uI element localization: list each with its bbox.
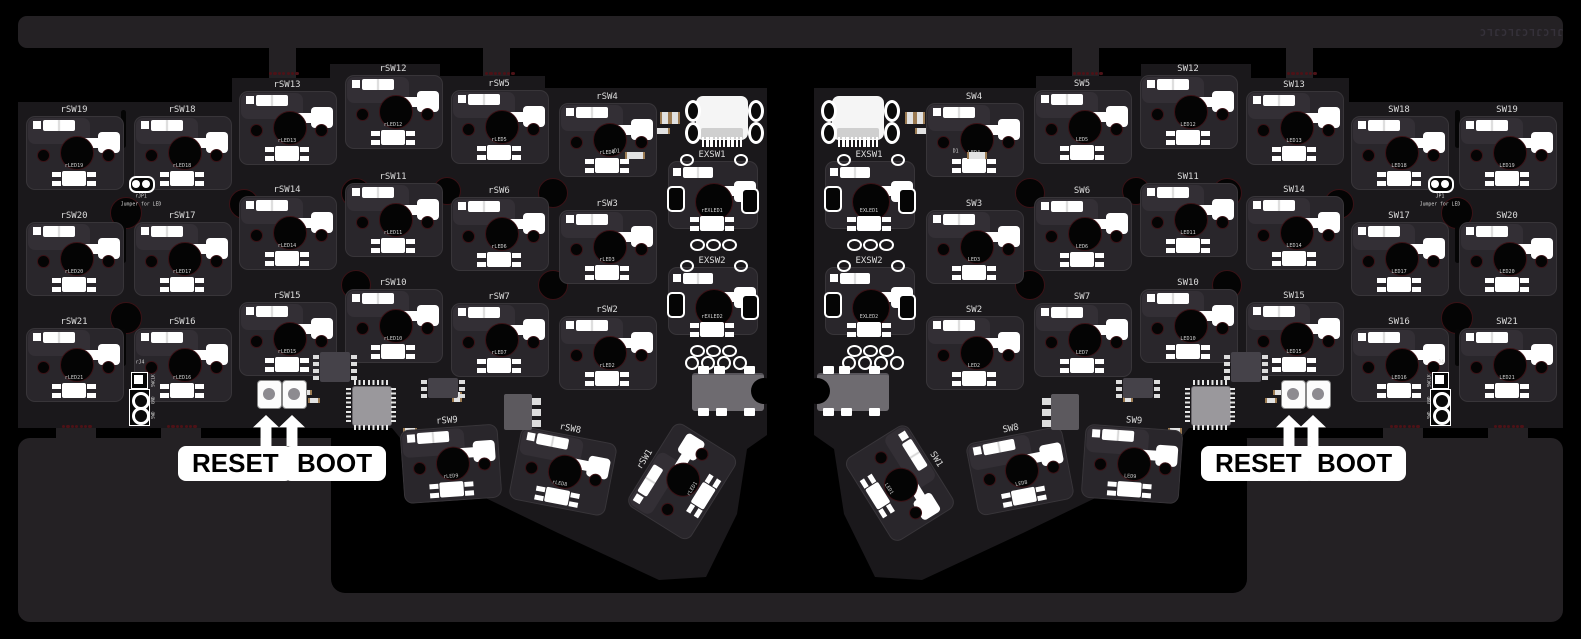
led-pad bbox=[477, 262, 486, 267]
led-pad bbox=[477, 155, 486, 160]
switch-pad bbox=[43, 332, 75, 343]
usb-pin bbox=[872, 137, 874, 147]
mouse-bite-dot bbox=[1099, 72, 1102, 75]
switch-pad bbox=[1147, 188, 1155, 196]
reset-button-cap bbox=[1287, 388, 1299, 400]
led-pad bbox=[952, 266, 961, 271]
led-pad bbox=[1272, 252, 1281, 257]
switch-pad bbox=[933, 215, 941, 223]
led-footprint bbox=[487, 252, 511, 267]
mcu-pins bbox=[354, 380, 388, 385]
led-pad bbox=[1377, 287, 1386, 292]
led-footprint bbox=[1387, 383, 1411, 398]
switch-side-hole bbox=[1427, 149, 1440, 162]
led-footprint bbox=[700, 216, 724, 231]
led-pad bbox=[371, 239, 380, 244]
switch-pad bbox=[830, 168, 838, 176]
switch-side-hole bbox=[102, 255, 115, 268]
ic-pad bbox=[1154, 380, 1160, 384]
microcontroller-chip bbox=[1191, 386, 1231, 426]
switch-pad bbox=[1051, 94, 1083, 105]
led-pad bbox=[1272, 147, 1281, 152]
switch-side-hole bbox=[1151, 216, 1164, 229]
jumper-pad bbox=[1441, 180, 1449, 188]
led-pad bbox=[847, 323, 856, 328]
switch-pad bbox=[1253, 96, 1261, 104]
panel-top-rail bbox=[18, 16, 1563, 48]
led-pad bbox=[512, 253, 521, 258]
switch-side-hole bbox=[1470, 149, 1483, 162]
switch-pad bbox=[576, 320, 608, 331]
ic-pad bbox=[1224, 355, 1230, 359]
led-refdes-label: EXLED2 bbox=[835, 314, 903, 320]
switch-refdes-label: SW20 bbox=[1447, 211, 1567, 221]
ic-pad bbox=[1116, 380, 1122, 384]
switch-refdes-label: rSW2 bbox=[547, 305, 667, 315]
mouse-bite-dot bbox=[193, 425, 196, 428]
led-pad bbox=[512, 155, 521, 160]
switch-refdes-label: SW7 bbox=[1022, 292, 1142, 302]
led-pad bbox=[1307, 358, 1316, 363]
led-refdes-label: LED13 bbox=[1260, 138, 1328, 144]
led-pad bbox=[1166, 239, 1175, 244]
jumper-pad bbox=[1431, 180, 1439, 188]
switch-pad bbox=[468, 94, 500, 105]
led-pad bbox=[585, 266, 594, 271]
led-footprint bbox=[62, 171, 86, 186]
led-pad bbox=[987, 168, 996, 173]
switch-refdes-label: SW13 bbox=[1234, 80, 1354, 90]
usb-mount-pad bbox=[884, 100, 900, 122]
led-pad bbox=[987, 275, 996, 280]
led-pad bbox=[952, 381, 961, 386]
led-pad bbox=[1095, 359, 1104, 364]
led-pad bbox=[620, 159, 629, 164]
regulator-pin bbox=[532, 409, 541, 416]
ic-pad bbox=[351, 369, 357, 373]
led-pad bbox=[512, 368, 521, 373]
switch-side-hole bbox=[1362, 149, 1375, 162]
led-pad bbox=[1272, 261, 1281, 266]
diode-component bbox=[625, 152, 645, 159]
led-pad bbox=[882, 226, 891, 231]
switch-side-hole bbox=[635, 349, 648, 362]
ic-chip bbox=[320, 352, 350, 382]
mouse-bite-dot bbox=[171, 425, 174, 428]
led-pad bbox=[52, 278, 61, 283]
switch-side-hole bbox=[1535, 149, 1548, 162]
led-pad bbox=[160, 287, 169, 292]
regulator-pin bbox=[532, 420, 541, 427]
switch-pad bbox=[352, 188, 360, 196]
led-footprint bbox=[1176, 344, 1200, 359]
switch-pad bbox=[1358, 333, 1366, 341]
switch-pad bbox=[362, 187, 394, 198]
switch-refdes-label: SW17 bbox=[1339, 211, 1459, 221]
mcu-pins bbox=[354, 425, 388, 430]
ic-pad bbox=[313, 376, 319, 380]
switch-pad bbox=[943, 320, 975, 331]
led-pad bbox=[195, 172, 204, 177]
switch-side-hole bbox=[1110, 230, 1123, 243]
switch-side-hole bbox=[1322, 229, 1335, 242]
led-pad bbox=[882, 323, 891, 328]
switch-side-hole bbox=[210, 361, 223, 374]
usb-mount-pad bbox=[821, 100, 837, 122]
mouse-bite-dot bbox=[1416, 425, 1419, 428]
led-pad bbox=[725, 217, 734, 222]
switch-refdes-label: rSW11 bbox=[333, 172, 453, 182]
switch-side-hole bbox=[1362, 361, 1375, 374]
led-pad bbox=[620, 381, 629, 386]
mouse-bite-dot bbox=[1394, 425, 1397, 428]
switch-pad bbox=[933, 321, 941, 329]
led-refdes-label: LED16 bbox=[1365, 375, 1433, 381]
led-footprint bbox=[1495, 277, 1519, 292]
switch-side-hole bbox=[937, 349, 950, 362]
switch-side-hole bbox=[1535, 361, 1548, 374]
led-pad bbox=[952, 159, 961, 164]
switch-pad bbox=[43, 120, 75, 131]
switch-side-hole bbox=[421, 216, 434, 229]
switch-pad bbox=[1157, 187, 1189, 198]
led-pad bbox=[1520, 181, 1529, 186]
regulator-pin bbox=[532, 398, 541, 405]
led-refdes-label: LED14 bbox=[1260, 243, 1328, 249]
switch-refdes-label: SW6 bbox=[1022, 186, 1142, 196]
led-pad bbox=[371, 345, 380, 350]
led-refdes-label: LED15 bbox=[1260, 349, 1328, 355]
switch-side-hole bbox=[1257, 229, 1270, 242]
debug-refdes: rJ4 bbox=[131, 360, 149, 366]
switch-refdes-label: SW2 bbox=[914, 305, 1034, 315]
switch-pad bbox=[256, 95, 288, 106]
switch-pad bbox=[1253, 307, 1261, 315]
debug-pin-label: SWCLK bbox=[1427, 374, 1432, 387]
switch-refdes-label: rSW14 bbox=[227, 185, 347, 195]
led-pad bbox=[585, 372, 594, 377]
led-pad bbox=[1095, 262, 1104, 267]
ic-pad bbox=[1262, 376, 1268, 380]
led-refdes-label: LED7 bbox=[1048, 350, 1116, 356]
switch-side-hole bbox=[145, 149, 158, 162]
led-pad bbox=[690, 217, 699, 222]
led-pad bbox=[987, 372, 996, 377]
debug-pin-label: SWD bbox=[1427, 411, 1432, 419]
led-pad bbox=[371, 248, 380, 253]
ic-pad bbox=[421, 387, 427, 391]
led-refdes-label: EXLED1 bbox=[835, 208, 903, 214]
led-refdes-label: rLED10 bbox=[359, 336, 427, 342]
boot-callout: BOOT bbox=[1303, 446, 1406, 481]
switch-refdes-label: rSW18 bbox=[122, 105, 242, 115]
led-pad bbox=[87, 181, 96, 186]
led-pad bbox=[406, 248, 415, 253]
led-pad bbox=[1201, 131, 1210, 136]
switch-side-hole bbox=[250, 335, 263, 348]
led-pad bbox=[1485, 393, 1494, 398]
led-refdes-label: rLED21 bbox=[40, 375, 108, 381]
diode-refdes: D1 bbox=[953, 149, 959, 155]
switch-pad bbox=[1092, 429, 1101, 438]
led-footprint bbox=[487, 145, 511, 160]
led-footprint bbox=[1070, 358, 1094, 373]
led-pad bbox=[52, 172, 61, 177]
switch-pad bbox=[1263, 306, 1295, 317]
switch-pad bbox=[246, 201, 254, 209]
usb-pin bbox=[715, 137, 717, 147]
led-pad bbox=[52, 287, 61, 292]
ic-pad bbox=[351, 362, 357, 366]
mouse-bite-dot bbox=[1291, 72, 1294, 75]
led-pad bbox=[1520, 172, 1529, 177]
led-pad bbox=[1060, 262, 1069, 267]
switch-side-hole bbox=[356, 216, 369, 229]
jack-pin bbox=[841, 408, 852, 416]
switch-side-hole bbox=[356, 322, 369, 335]
led-pad bbox=[87, 384, 96, 389]
led-pad bbox=[406, 140, 415, 145]
switch-refdes-label: rSW15 bbox=[227, 291, 347, 301]
led-footprint bbox=[275, 251, 299, 266]
led-pad bbox=[265, 358, 274, 363]
led-pad bbox=[371, 140, 380, 145]
mouse-bite-dot bbox=[88, 425, 91, 428]
debug-refdes: J4 bbox=[1432, 360, 1450, 366]
led-pad bbox=[464, 481, 473, 487]
led-pad bbox=[1377, 181, 1386, 186]
through-hole-pad bbox=[890, 356, 904, 370]
switch-side-hole bbox=[1216, 322, 1229, 335]
led-refdes-label: rEXLED1 bbox=[678, 208, 746, 214]
led-pad bbox=[847, 217, 856, 222]
led-footprint bbox=[275, 146, 299, 161]
switch-pad bbox=[1476, 332, 1508, 343]
led-pad bbox=[987, 159, 996, 164]
switch-pad bbox=[1157, 79, 1189, 90]
switch-side-hole bbox=[1045, 230, 1058, 243]
led-pad bbox=[1060, 155, 1069, 160]
led-footprint bbox=[487, 358, 511, 373]
switch-side-hole bbox=[1151, 108, 1164, 121]
led-pad bbox=[585, 168, 594, 173]
switch-side-hole bbox=[1002, 136, 1015, 149]
mouse-bite-dot bbox=[1305, 72, 1308, 75]
ic-chip bbox=[1231, 352, 1261, 382]
switch-side-hole bbox=[37, 255, 50, 268]
led-pad bbox=[620, 372, 629, 377]
led-refdes-label: LED19 bbox=[1473, 163, 1541, 169]
switch-pad bbox=[151, 226, 183, 237]
switch-pad bbox=[141, 227, 149, 235]
jack-opening bbox=[804, 378, 830, 404]
led-pad bbox=[1060, 368, 1069, 373]
jumper-label: Jumper for LED bbox=[1411, 202, 1469, 208]
led-pad bbox=[195, 287, 204, 292]
switch-refdes-label: rSW3 bbox=[547, 199, 667, 209]
switch-refdes-label: SW16 bbox=[1339, 317, 1459, 327]
led-footprint bbox=[1117, 481, 1142, 498]
through-hole-pad bbox=[847, 239, 862, 251]
passive-component bbox=[1265, 398, 1277, 403]
led-pad bbox=[1272, 358, 1281, 363]
ic-pad bbox=[459, 387, 465, 391]
mouse-bite-dot bbox=[273, 72, 276, 75]
regulator-pin bbox=[1042, 420, 1051, 427]
usb-mount-pad bbox=[748, 100, 764, 122]
led-footprint bbox=[1282, 251, 1306, 266]
led-footprint bbox=[962, 158, 986, 173]
switch-pad bbox=[673, 274, 681, 282]
switch-refdes-label: SW15 bbox=[1234, 291, 1354, 301]
switch-side-hole bbox=[250, 124, 263, 137]
led-refdes-label: rEXLED2 bbox=[678, 314, 746, 320]
usb-mount-pad bbox=[685, 100, 701, 122]
through-hole-pad bbox=[863, 239, 878, 251]
jack-pin bbox=[823, 366, 834, 374]
usb-pin bbox=[727, 137, 729, 147]
switch-pad bbox=[973, 446, 982, 455]
switch-pad bbox=[933, 108, 941, 116]
switch-pad bbox=[1358, 121, 1366, 129]
boot-callout: BOOT bbox=[283, 446, 386, 481]
switch-pad bbox=[256, 306, 288, 317]
debug-pad bbox=[1435, 375, 1444, 384]
switch-pad bbox=[1476, 226, 1508, 237]
led-pad bbox=[1060, 253, 1069, 258]
jack-pin bbox=[744, 366, 755, 374]
led-refdes-label: rLED5 bbox=[465, 137, 533, 143]
led-pad bbox=[1201, 354, 1210, 359]
ic-chip bbox=[1123, 378, 1153, 398]
switch-pad bbox=[1466, 227, 1474, 235]
led-pad bbox=[690, 332, 699, 337]
ic-pad bbox=[1262, 355, 1268, 359]
switch-side-hole bbox=[1470, 361, 1483, 374]
mouse-bite-dot bbox=[511, 72, 514, 75]
led-refdes-label: rLED19 bbox=[40, 163, 108, 169]
led-footprint bbox=[1176, 238, 1200, 253]
led-footprint bbox=[1387, 277, 1411, 292]
usb-pin bbox=[723, 137, 725, 147]
ic-pad bbox=[1262, 369, 1268, 373]
jumper-refdes: rJP1 bbox=[123, 194, 158, 200]
led-pad bbox=[1201, 239, 1210, 244]
jack-pin bbox=[716, 408, 727, 416]
led-refdes-label: rLED7 bbox=[465, 350, 533, 356]
led-pad bbox=[195, 278, 204, 283]
jack-pin bbox=[744, 408, 755, 416]
led-pad bbox=[1485, 278, 1494, 283]
through-hole-pad bbox=[879, 239, 894, 251]
led-pad bbox=[265, 261, 274, 266]
mcu-pins bbox=[1193, 380, 1227, 385]
usb-pin bbox=[736, 137, 738, 147]
led-footprint bbox=[595, 265, 619, 280]
jack-pin bbox=[869, 366, 880, 374]
switch-side-hole bbox=[1322, 124, 1335, 137]
led-pad bbox=[952, 168, 961, 173]
led-pad bbox=[1166, 354, 1175, 359]
led-footprint bbox=[1176, 130, 1200, 145]
led-pad bbox=[300, 261, 309, 266]
led-pad bbox=[1377, 384, 1386, 389]
led-pad bbox=[87, 278, 96, 283]
led-pad bbox=[1142, 484, 1151, 490]
switch-pad bbox=[246, 307, 254, 315]
led-refdes-label: LED2 bbox=[940, 363, 1008, 369]
switch-pad bbox=[673, 168, 681, 176]
jack-pin bbox=[839, 366, 850, 374]
switch-side-hole bbox=[1045, 336, 1058, 349]
switch-side-hole bbox=[37, 361, 50, 374]
switch-pad bbox=[1253, 201, 1261, 209]
led-pad bbox=[585, 275, 594, 280]
led-pad bbox=[847, 226, 856, 231]
usb-pin bbox=[731, 137, 733, 147]
switch-pad bbox=[468, 201, 500, 212]
led-pad bbox=[87, 172, 96, 177]
led-pad bbox=[406, 345, 415, 350]
led-pad bbox=[1485, 181, 1494, 186]
switch-pad bbox=[141, 333, 149, 341]
switch-pad bbox=[840, 167, 870, 178]
led-pad bbox=[1307, 147, 1316, 152]
led-pad bbox=[952, 275, 961, 280]
led-refdes-label: LED6 bbox=[1048, 244, 1116, 250]
switch-refdes-label: rSW5 bbox=[439, 79, 559, 89]
led-refdes-label: rLED6 bbox=[465, 244, 533, 250]
diode-refdes: rD1 bbox=[611, 149, 620, 155]
led-pad bbox=[300, 147, 309, 152]
led-pad bbox=[585, 159, 594, 164]
led-pad bbox=[1520, 278, 1529, 283]
led-pad bbox=[371, 131, 380, 136]
through-hole-pad bbox=[722, 239, 737, 251]
led-pad bbox=[52, 393, 61, 398]
led-pad bbox=[160, 384, 169, 389]
led-pad bbox=[1412, 393, 1421, 398]
switch-pad bbox=[151, 120, 183, 131]
ic-pad bbox=[1224, 362, 1230, 366]
switch-pad bbox=[362, 293, 394, 304]
switch-side-hole bbox=[1470, 255, 1483, 268]
switch-refdes-label: SW19 bbox=[1447, 105, 1567, 115]
led-pad bbox=[1272, 367, 1281, 372]
led-pad bbox=[987, 381, 996, 386]
led-pad bbox=[300, 252, 309, 257]
usb-pin bbox=[851, 137, 853, 147]
led-pad bbox=[160, 172, 169, 177]
switch-side-hole bbox=[421, 322, 434, 335]
reset-callout: RESET bbox=[1201, 446, 1316, 481]
switch-refdes-label: rSW10 bbox=[333, 278, 453, 288]
switch-pad bbox=[1102, 429, 1135, 442]
led-footprint bbox=[170, 383, 194, 398]
mouse-bite-dot bbox=[295, 72, 298, 75]
switch-pad bbox=[526, 432, 535, 441]
led-footprint bbox=[62, 383, 86, 398]
switch-side-hole bbox=[937, 136, 950, 149]
switch-pad bbox=[43, 226, 75, 237]
led-refdes-label: rLED18 bbox=[148, 163, 216, 169]
switch-pad bbox=[566, 108, 574, 116]
switch-side-hole bbox=[1322, 335, 1335, 348]
usb-pin bbox=[740, 137, 742, 147]
led-pad bbox=[406, 239, 415, 244]
led-pad bbox=[882, 332, 891, 337]
switch-pad bbox=[840, 273, 870, 284]
